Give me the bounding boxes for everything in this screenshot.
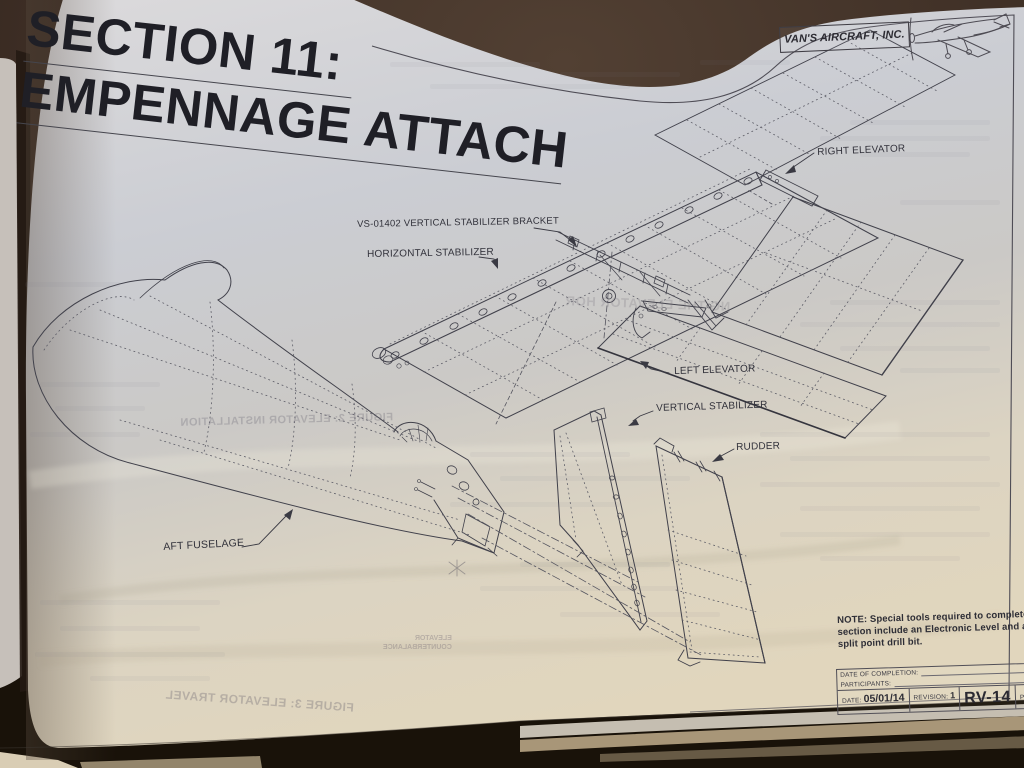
bleedthrough-counterbalance-line2: COUNTERBALANCE <box>383 643 452 652</box>
special-tools-note: NOTE: Special tools required to complete… <box>837 609 1024 652</box>
company-name: VAN'S AIRCRAFT, INC. <box>784 29 905 46</box>
model-number: RV-14 <box>964 689 1011 708</box>
label-horizontal-stabilizer: HORIZONTAL STABILIZER <box>367 247 494 260</box>
revision-cell: REVISION: 1 <box>908 687 959 712</box>
label-rudder: RUDDER <box>736 441 780 453</box>
model-cell: RV-14 <box>959 685 1015 710</box>
title-block: DATE OF COMPLETION: PARTICIPANTS: DATE: … <box>836 662 1024 715</box>
revision-value: 1 <box>950 690 955 700</box>
photographed-plans-page: SECTION 11: EMPENNAGE ATTACH VAN'S AIRCR… <box>0 0 1024 768</box>
revision-label: REVISION: <box>913 693 948 701</box>
date-label: DATE: <box>842 697 862 705</box>
bleedthrough-counterbalance-line1: ELEVATOR <box>383 634 452 643</box>
date-value: 05/01/14 <box>863 692 904 705</box>
date-cell: DATE: 05/01/14 <box>838 689 909 714</box>
page-label: PAGE <box>1020 694 1024 702</box>
bleedthrough-counterbalance: ELEVATOR COUNTERBALANCE <box>383 634 452 653</box>
page-cell: PAGE 1 <box>1015 684 1024 708</box>
